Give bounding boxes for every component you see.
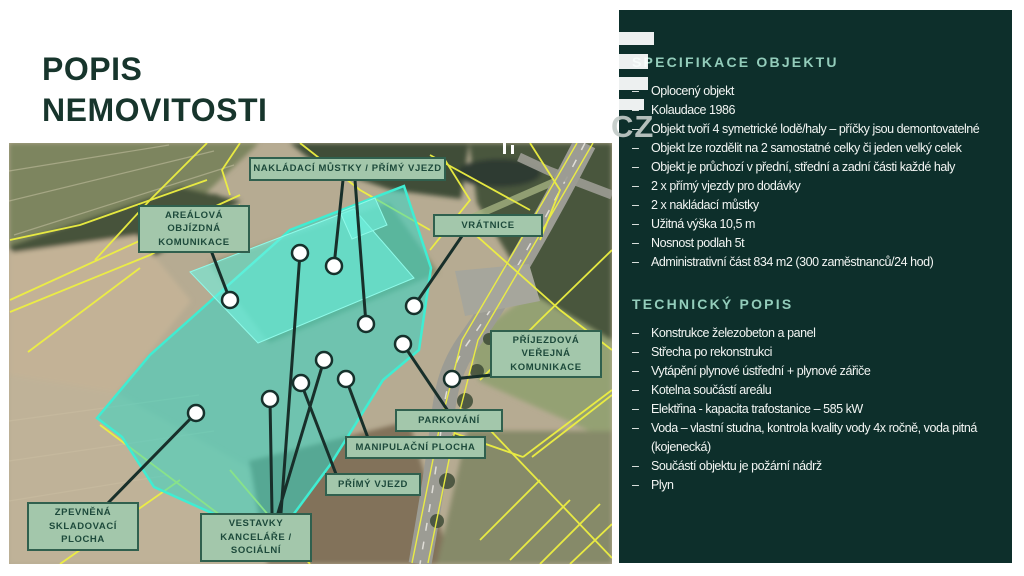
bullet-dash: – [632,400,651,419]
bullet-dash: – [632,343,651,362]
spec-item-text: Plyn [651,476,1003,495]
marker-dot [222,292,238,308]
spec-item: – Elektřina - kapacita trafostanice – 58… [632,400,1004,419]
page-title-line2: NEMOVITOSTI [42,90,267,131]
spec-item-text: Objekt je průchozí v přední, střední a z… [651,158,1003,177]
section-title-technicky: TECHNICKÝ POPIS [632,296,1004,312]
map-label-parkovani: PARKOVÁNÍ [395,409,503,432]
bullet-dash: – [632,215,651,234]
map-label-nakladaci-mustky: NAKLÁDACÍ MŮSTKY / PŘÍMÝ VJEZD [249,157,446,181]
bullet-dash: – [632,234,651,253]
spec-item: – Střecha po rekonstrukci [632,343,1004,362]
panel-section-technicky: TECHNICKÝ POPIS – Konstrukce železobeton… [632,296,1004,495]
marker-dot [188,405,204,421]
spec-item: – Užitná výška 10,5 m [632,215,1004,234]
watermark-bar [604,77,648,90]
watermark-cz-text: CZ [611,109,654,145]
spec-item: – Oplocený objekt [632,82,1004,101]
tech-list: – Konstrukce železobeton a panel – Střec… [632,324,1004,495]
watermark-bar [604,32,654,45]
map-label-vestavky: VESTAVKY KANCELÁŘE / SOCIÁLNÍ [200,513,312,562]
map-label-vratnice: VRÁTNICE [433,214,543,237]
section-title-specifikace: SPECIFIKACE OBJEKTU [632,54,1004,70]
spec-item-text: Objekt lze rozdělit na 2 samostatné celk… [651,139,1003,158]
spec-item-text: Objekt tvoří 4 symetrické lodě/haly – př… [651,120,1003,139]
panel-section-specifikace: SPECIFIKACE OBJEKTU – Oplocený objekt – … [632,54,1004,272]
page-title-line1: POPIS [42,49,267,90]
marker-dot [406,298,422,314]
spec-item: – 2 x přímý vjezdy pro dodávky [632,177,1004,196]
map-label-prijezdova-komunikace: PŘÍJEZDOVÁ VEŘEJNÁ KOMUNIKACE [490,330,602,378]
spec-item-text: 2 x nakládací můstky [651,196,1003,215]
bullet-dash: – [632,381,651,400]
spec-item: – Objekt lze rozdělit na 2 samostatné ce… [632,139,1004,158]
map-label-arealova-komunikace: AREÁLOVÁ OBJÍZDNÁ KOMUNIKACE [138,205,250,253]
bullet-dash: – [632,419,651,438]
marker-dot [358,316,374,332]
spec-item-text: Součástí objektu je požární nádrž [651,457,1003,476]
page-title: POPIS NEMOVITOSTI [42,49,267,131]
marker-dot [326,258,342,274]
spec-item: – Voda – vlastní studna, kontrola kvalit… [632,419,1004,457]
spec-item: – Vytápění plynové ústřední + plynové zá… [632,362,1004,381]
spec-item-text: Kolaudace 1986 [651,101,1003,120]
bullet-dash: – [632,457,651,476]
bullet-dash: – [632,324,651,343]
map-label-primy-vjezd: PŘÍMÝ VJEZD [325,473,421,496]
marker-dot [316,352,332,368]
bullet-dash: – [632,476,651,495]
spec-item: – 2 x nakládací můstky [632,196,1004,215]
spec-item: – Administrativní část 834 m2 (300 zaměs… [632,253,1004,272]
spec-item-text: Kotelna součástí areálu [651,381,1003,400]
spec-item: – Kotelna součástí areálu [632,381,1004,400]
spec-item-text: Voda – vlastní studna, kontrola kvality … [651,419,1003,457]
watermark-bar [591,54,648,69]
marker-dot [338,371,354,387]
spec-item: – Objekt tvoří 4 symetrické lodě/haly – … [632,120,1004,139]
marker-dot [292,245,308,261]
bullet-dash: – [632,253,651,272]
property-map: NAKLÁDACÍ MŮSTKY / PŘÍMÝ VJEZD VRÁTNICE … [9,143,612,564]
spec-item-text: Konstrukce železobeton a panel [651,324,1003,343]
specs-panel: SPECIFIKACE OBJEKTU – Oplocený objekt – … [619,10,1012,563]
bullet-dash: – [632,177,651,196]
spec-list: – Oplocený objekt – Kolaudace 1986 – Obj… [632,82,1004,272]
spec-item-text: Elektřina - kapacita trafostanice – 585 … [651,400,1003,419]
spec-item-text: Užitná výška 10,5 m [651,215,1003,234]
map-label-manipulacni-plocha: MANIPULAČNÍ PLOCHA [345,436,486,459]
spec-item-text: 2 x přímý vjezdy pro dodávky [651,177,1003,196]
marker-dot [444,371,460,387]
spec-item: – Kolaudace 1986 [632,101,1004,120]
marker-dot [293,375,309,391]
spec-item-text: Nosnost podlah 5t [651,234,1003,253]
spec-item: – Plyn [632,476,1004,495]
bullet-dash: – [632,158,651,177]
spec-item: – Nosnost podlah 5t [632,234,1004,253]
spec-item-text: Oplocený objekt [651,82,1003,101]
spec-item-text: Vytápění plynové ústřední + plynové záři… [651,362,1003,381]
bullet-dash: – [632,362,651,381]
spec-item: – Objekt je průchozí v přední, střední a… [632,158,1004,177]
spec-item: – Součástí objektu je požární nádrž [632,457,1004,476]
marker-dot [262,391,278,407]
slide: POPIS NEMOVITOSTI [0,0,1024,576]
marker-dot [395,336,411,352]
spec-item: – Konstrukce železobeton a panel [632,324,1004,343]
spec-item-text: Střecha po rekonstrukci [651,343,1003,362]
map-label-zpevnena-plocha: ZPEVNĚNÁ SKLADOVACÍ PLOCHA [27,502,139,551]
spec-item-text: Administrativní část 834 m2 (300 zaměstn… [651,253,1003,272]
bullet-dash: – [632,196,651,215]
